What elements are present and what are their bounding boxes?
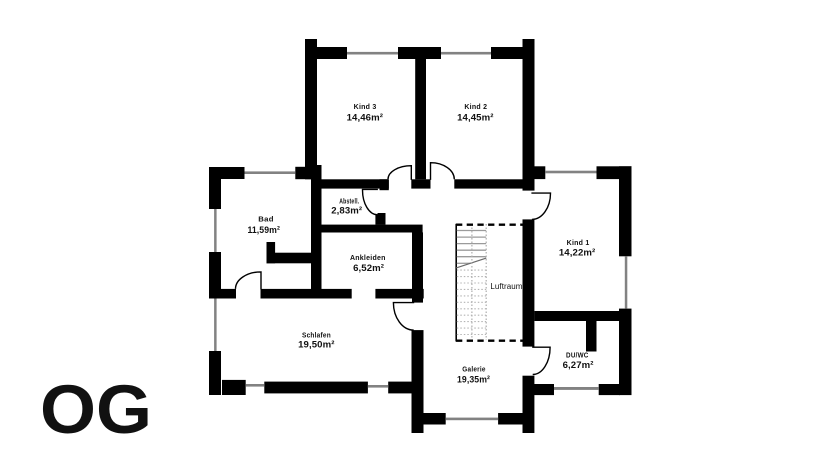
svg-text:Galerie: Galerie xyxy=(462,367,486,374)
svg-text:Kind 2: Kind 2 xyxy=(464,104,487,111)
svg-text:14,46m²: 14,46m² xyxy=(347,113,383,124)
svg-text:6,52m²: 6,52m² xyxy=(353,263,384,274)
svg-text:14,22m²: 14,22m² xyxy=(559,248,595,259)
svg-text:19,50m²: 19,50m² xyxy=(298,340,334,351)
svg-text:Luftraum: Luftraum xyxy=(490,282,522,291)
svg-text:Bad: Bad xyxy=(258,216,274,223)
svg-text:DU/WC: DU/WC xyxy=(566,353,589,360)
svg-text:6,27m²: 6,27m² xyxy=(563,360,594,371)
svg-text:2,83m²: 2,83m² xyxy=(331,205,362,216)
svg-text:Ankleiden: Ankleiden xyxy=(350,255,386,262)
svg-text:Abstell.: Abstell. xyxy=(339,198,359,205)
svg-text:19,35m²: 19,35m² xyxy=(457,374,490,385)
svg-text:14,45m²: 14,45m² xyxy=(457,113,493,124)
svg-text:Kind 3: Kind 3 xyxy=(354,104,377,111)
svg-text:Kind 1: Kind 1 xyxy=(567,240,590,247)
svg-text:Schlafen: Schlafen xyxy=(302,333,331,340)
svg-text:11,59m²: 11,59m² xyxy=(247,225,280,236)
svg-text:OG: OG xyxy=(40,371,152,448)
